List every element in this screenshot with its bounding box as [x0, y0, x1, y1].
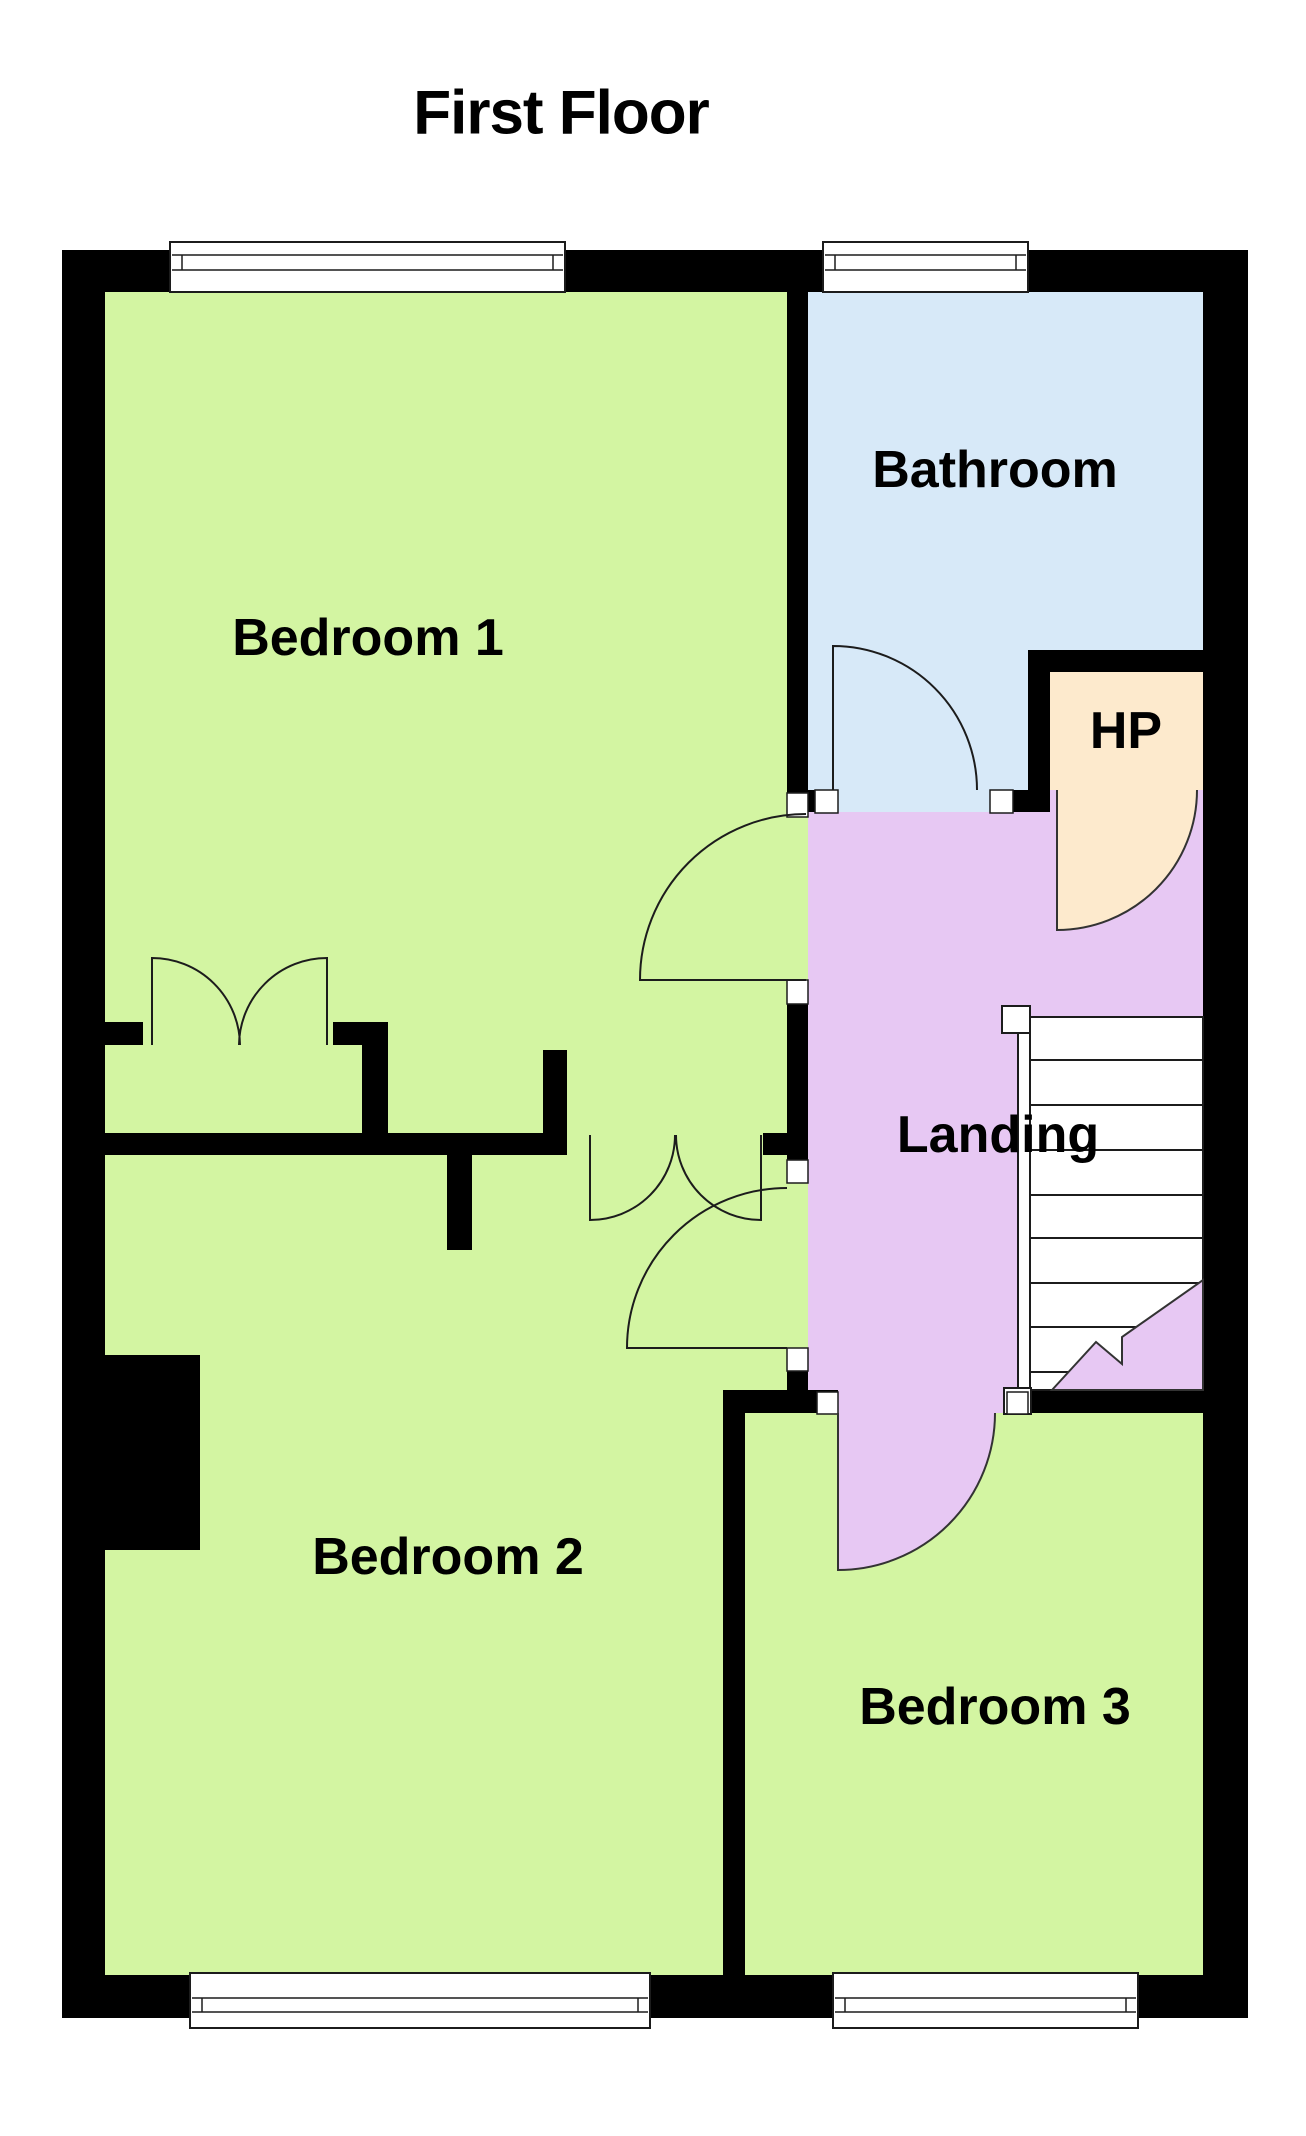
plan-title: First Floor [413, 79, 709, 148]
wall-bedroom1-bathroom [787, 292, 808, 817]
bedroom2-label: Bedroom 2 [312, 1528, 584, 1586]
landing-label: Landing [897, 1106, 1099, 1164]
closet1-side-wall [362, 1045, 388, 1135]
jamb-bedroom3-right [1007, 1392, 1028, 1414]
jamb-bedroom2-bottom [787, 1348, 808, 1371]
closet1-stub-right [333, 1022, 388, 1045]
staircase [1002, 1006, 1203, 1414]
jamb-bathroom-left [815, 790, 838, 813]
jamb-bedroom2-top [787, 1160, 808, 1183]
closet2-stub-down [447, 1155, 472, 1250]
bedroom1-floor [105, 292, 808, 1133]
window-bathroom [823, 242, 1028, 292]
window-bedroom2 [190, 1973, 650, 2028]
jamb-bedroom3-left [817, 1392, 838, 1414]
bedroom3-label: Bedroom 3 [859, 1678, 1131, 1736]
chimney-pier [105, 1355, 200, 1550]
closet1-stub-left [105, 1022, 143, 1045]
jamb-bathroom-right [990, 790, 1013, 813]
hp-left-wall [1028, 650, 1050, 812]
window-bedroom1 [170, 242, 565, 292]
hp-label: HP [1090, 702, 1162, 760]
wall-bedroom1-bedroom2-left [105, 1133, 567, 1155]
floorplan-canvas: First Floor [0, 0, 1306, 2136]
wall-bedroom1-bedroom2-right [763, 1133, 808, 1155]
bedroom1-label: Bedroom 1 [232, 609, 504, 667]
stair-railing [1018, 1032, 1030, 1388]
alcove-stub-up [543, 1050, 567, 1133]
jamb-bedroom1-bottom [787, 980, 808, 1004]
bathroom-label: Bathroom [872, 441, 1118, 499]
bedroom3-doorway-floor [838, 1390, 1007, 1413]
railing-newel-post-top [1002, 1006, 1030, 1033]
hp-top-wall [1028, 650, 1203, 672]
window-bedroom3 [833, 1973, 1138, 2028]
floorplan-page: First Floor [0, 0, 1306, 2136]
bedroom2-closet-opening [567, 1133, 763, 1155]
wall-bedroom2-landing-stub [787, 1371, 808, 1392]
